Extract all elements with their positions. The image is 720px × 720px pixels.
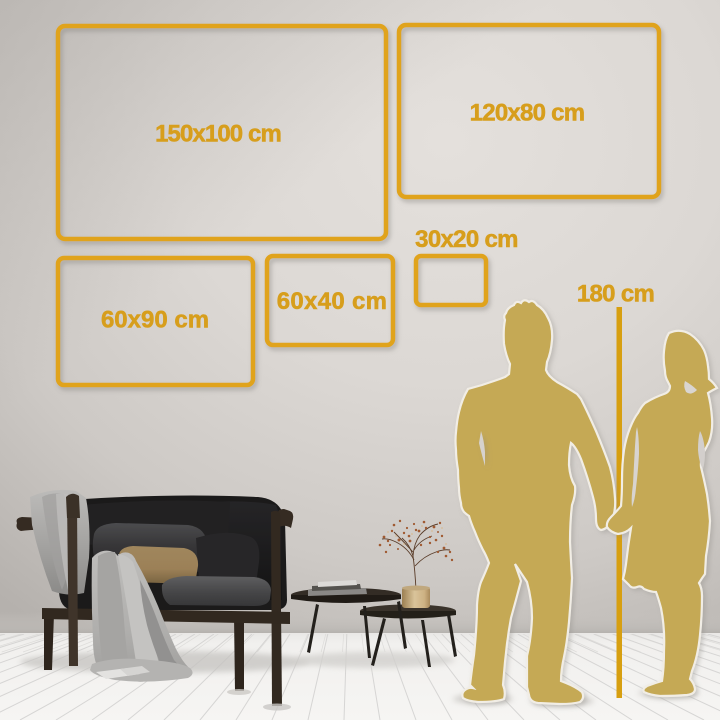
svg-text:60x40 cm: 60x40 cm [277, 288, 388, 315]
svg-text:30x20 cm: 30x20 cm [415, 226, 518, 253]
svg-text:150x100 cm: 150x100 cm [155, 121, 281, 148]
svg-text:60x90 cm: 60x90 cm [101, 306, 209, 333]
svg-text:120x80 cm: 120x80 cm [470, 100, 585, 127]
svg-text:180 cm: 180 cm [577, 281, 654, 308]
